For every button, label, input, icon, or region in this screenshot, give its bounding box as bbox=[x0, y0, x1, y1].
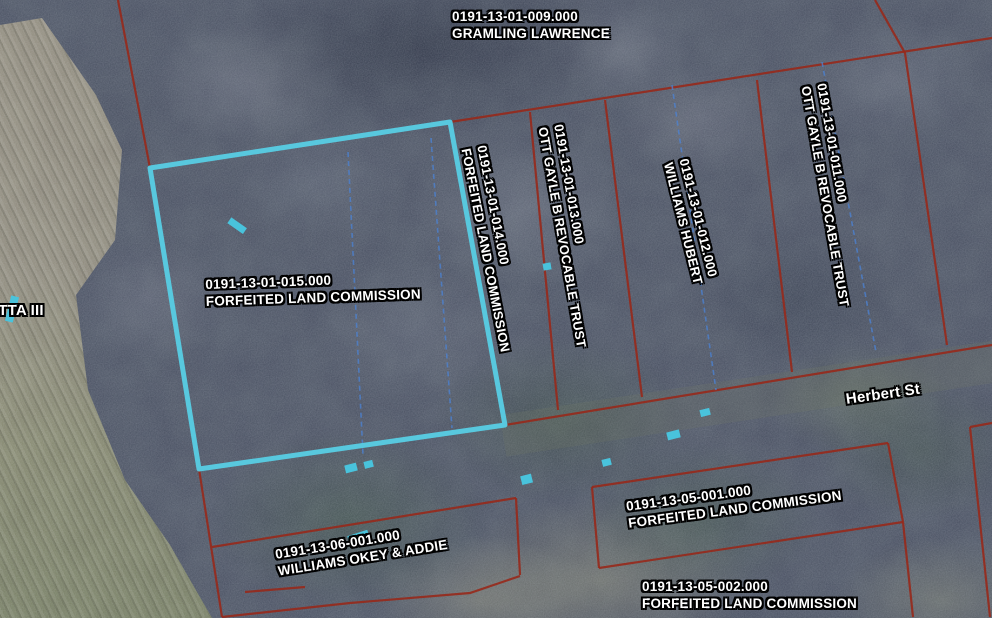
parcel-id: 0191-13-05-002.000 bbox=[642, 578, 857, 595]
parcel-owner: GRAMLING LAWRENCE bbox=[452, 25, 610, 42]
parcel-id: 0191-13-01-009.000 bbox=[452, 8, 610, 25]
parcel-map-canvas[interactable]: 0191-13-01-009.000 GRAMLING LAWRENCE 019… bbox=[0, 0, 992, 618]
parcel-owner: FORFEITED LAND COMMISSION bbox=[642, 595, 857, 612]
parcel-label-gramling: 0191-13-01-009.000 GRAMLING LAWRENCE bbox=[452, 8, 610, 42]
hydro-dashed-lines bbox=[348, 62, 876, 455]
parcel-label-flc05002: 0191-13-05-002.000 FORFEITED LAND COMMIS… bbox=[642, 578, 857, 612]
survey-tick-marks bbox=[5, 217, 711, 544]
parcel-owner: ETTA III bbox=[0, 303, 44, 319]
parcel-label-etta-partial: ETTA III bbox=[0, 303, 44, 319]
parcel-boundary-lines bbox=[118, 0, 992, 617]
